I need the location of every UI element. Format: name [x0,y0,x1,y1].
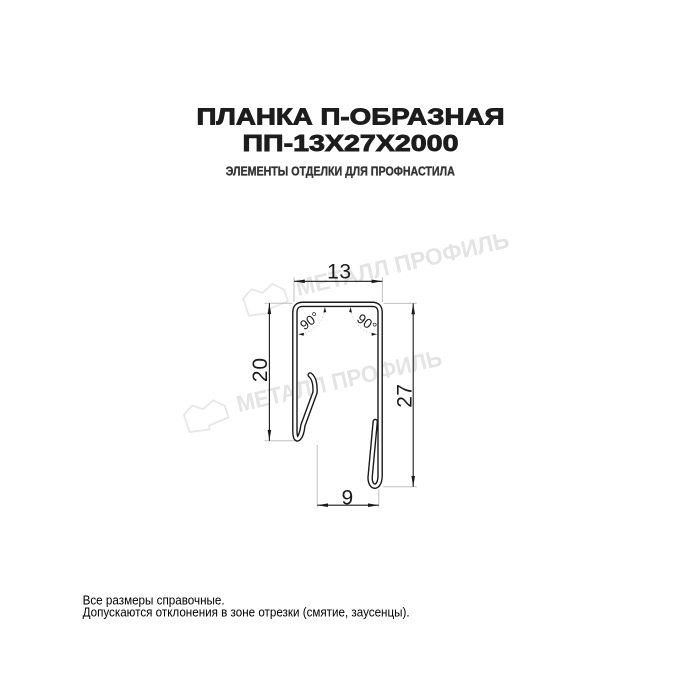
svg-text:Допускаются отклонения в зоне: Допускаются отклонения в зоне отрезки (с… [83,604,410,619]
svg-text:ЭЛЕМЕНТЫ ОТДЕЛКИ ДЛЯ ПРОФНАСТИ: ЭЛЕМЕНТЫ ОТДЕЛКИ ДЛЯ ПРОФНАСТИЛА [226,163,455,178]
svg-text:ПП-13Х27Х2000: ПП-13Х27Х2000 [243,130,459,156]
svg-text:27: 27 [393,384,416,408]
svg-text:20: 20 [249,357,272,382]
svg-text:ПЛАНКА П-ОБРАЗНАЯ: ПЛАНКА П-ОБРАЗНАЯ [197,104,505,130]
svg-text:13: 13 [327,261,352,284]
svg-text:9: 9 [341,486,353,509]
